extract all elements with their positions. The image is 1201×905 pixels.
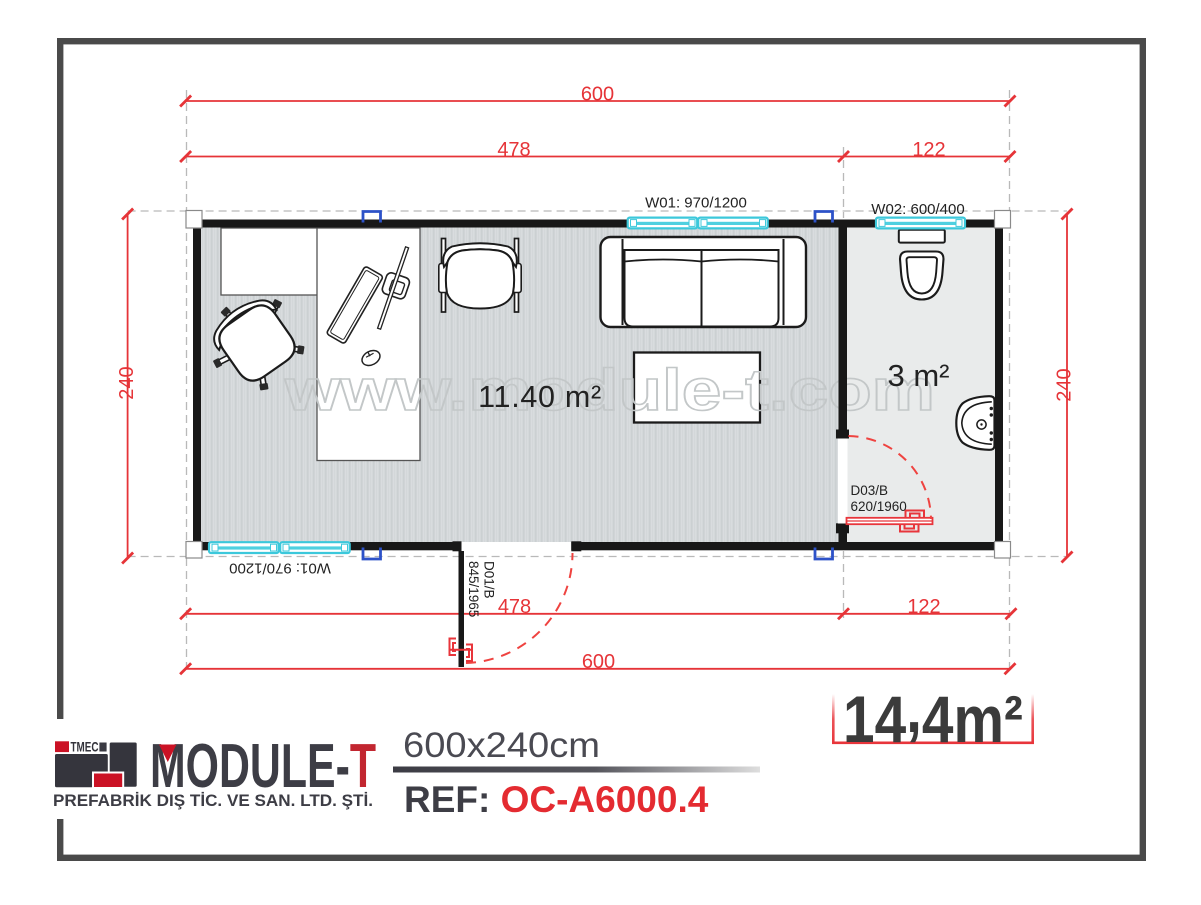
svg-text:D01/B: D01/B xyxy=(482,561,497,599)
svg-text:14,4m²: 14,4m² xyxy=(843,673,1023,757)
svg-text:600: 600 xyxy=(581,84,614,106)
svg-text:MODULE-T: MODULE-T xyxy=(150,732,376,801)
svg-text:TMEC: TMEC xyxy=(71,740,99,755)
svg-text:620/1960: 620/1960 xyxy=(851,499,907,514)
svg-text:11.40 m²: 11.40 m² xyxy=(478,380,602,414)
svg-text:478: 478 xyxy=(498,596,531,618)
svg-text:600x240cm: 600x240cm xyxy=(403,726,600,765)
svg-text:478: 478 xyxy=(497,139,530,161)
svg-text:3 m²: 3 m² xyxy=(888,358,950,393)
svg-text:www.module-t.com: www.module-t.com xyxy=(284,358,935,423)
svg-text:122: 122 xyxy=(907,596,940,618)
svg-text:D03/B: D03/B xyxy=(851,483,889,498)
svg-text:REF: OC-A6000.4: REF: OC-A6000.4 xyxy=(404,779,709,820)
svg-text:845/1965: 845/1965 xyxy=(466,561,481,617)
svg-text:240: 240 xyxy=(116,366,138,399)
svg-text:122: 122 xyxy=(912,139,945,161)
svg-text:PREFABRİK DIŞ TİC. VE SAN. LTD: PREFABRİK DIŞ TİC. VE SAN. LTD. ŞTİ. xyxy=(53,792,373,810)
svg-text:W01: 970/1200: W01: 970/1200 xyxy=(229,559,331,576)
svg-text:600: 600 xyxy=(582,651,615,673)
svg-text:W02: 600/400: W02: 600/400 xyxy=(871,201,964,218)
svg-text:W01: 970/1200: W01: 970/1200 xyxy=(645,195,747,212)
svg-text:240: 240 xyxy=(1054,368,1076,401)
